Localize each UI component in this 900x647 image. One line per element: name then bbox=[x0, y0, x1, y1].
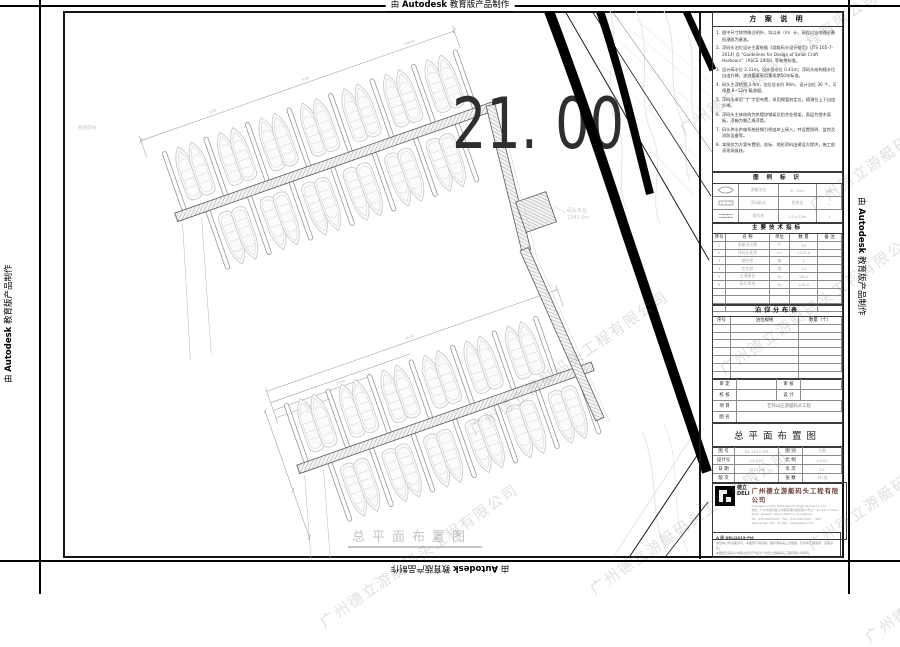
note-item: 码头供水供电系统经钢引桥由岸上接入，并设置照明、监控及消防设备等。 bbox=[722, 127, 839, 140]
legend-name: 浮动码头 bbox=[739, 197, 779, 210]
company-watermark: 广州德立游艇码头工程有限公司 bbox=[860, 494, 900, 647]
company-name-cn: 广州德立游艇码头工程有限公司 bbox=[752, 486, 844, 504]
dim-label: 4.00 bbox=[301, 76, 309, 82]
approver-value bbox=[737, 379, 777, 390]
note-item: 码头主浮桥宽 3.0m，泊位总长约 96m，设计泊位 30 个，可停靠 8~12… bbox=[722, 82, 839, 95]
legend-section: 图 例 标 识 游艇泊位 8~12m 30 浮动码头 铝合金 — 钢引桥 2.0… bbox=[712, 172, 843, 224]
dim-label: 44.00 bbox=[404, 334, 414, 341]
wm-prefix: 由 bbox=[391, 0, 400, 10]
deli-logo-text: 德立 DELI bbox=[737, 486, 750, 497]
designer-value bbox=[801, 390, 842, 401]
legend-spec: 铝合金 bbox=[779, 197, 817, 210]
signature-section: 审 定 审 核 校 核 设 计 项 目 艺邦山庄游艇码头工程 图 名 bbox=[712, 378, 843, 424]
footer-copyright: 未经本公司书面许可，本图纸不得复制、翻印或向第三方披露，仅供本工程使用，违者必究… bbox=[716, 541, 837, 551]
legend-title: 图 例 标 识 bbox=[713, 173, 842, 184]
autodesk-watermark-right: 由 Autodesk 教育版产品制作 bbox=[855, 192, 866, 321]
legend-qty: — bbox=[817, 197, 842, 210]
note-item: 浮码头主体结构为热镀锌钢架及铝合金框架，面层为塑木面板，浮箱为聚乙烯浮筒。 bbox=[722, 112, 839, 125]
autodesk-watermark-top: 由 Autodesk 教育版产品制作 bbox=[386, 0, 515, 12]
pontoon-icon bbox=[713, 197, 739, 210]
project-name: 艺邦山庄游艇码头工程 bbox=[737, 401, 842, 412]
project-label: 项 目 bbox=[713, 401, 737, 412]
shore-label: 规划岸线 bbox=[78, 124, 96, 131]
boat-icon bbox=[713, 184, 739, 197]
wm-suffix: 教育版产品制作 bbox=[450, 0, 510, 10]
footer-rights: 本图纸及其设计内容之知识产权归广州德立游艇码头工程有限公司所有。 bbox=[716, 551, 837, 556]
note-item: 浮码头采用“丁”字型布置，采用钢管桩定位，随潮位上下自由升降。 bbox=[722, 97, 839, 110]
drawing-title-faint: 总平面布置图 bbox=[352, 530, 472, 545]
notes-section: 方 案 说 明 1.图中尺寸除特殊注明外，均以米（m）计，高程以当地理论最低潮面… bbox=[712, 12, 843, 172]
company-address-2: Tel：020-34872223 Fax：020-34872223 Http：w… bbox=[752, 517, 844, 526]
right-rule bbox=[848, 0, 850, 594]
left-rule bbox=[39, 0, 41, 594]
company-address-1: 地址：广州市番禺区沙湾镇福涌村福贤路61号之一 No.61-1 Fuxian R… bbox=[752, 508, 844, 517]
checker-value bbox=[801, 379, 842, 390]
dim-label: 12.50 bbox=[335, 379, 345, 386]
platform-area-label: 1341.0m bbox=[567, 215, 589, 221]
wm-brand: Autodesk bbox=[402, 0, 447, 10]
verifier-value bbox=[737, 390, 777, 401]
sheet-title: 总平面布置图 bbox=[712, 422, 843, 448]
berth-table-section: 泊位分布表 序号 泊位规格 数量（个） bbox=[712, 304, 843, 380]
designer-label: 设 计 bbox=[777, 390, 801, 401]
note-item: 图中尺寸除特殊注明外，均以米（m）计，高程以当地理论最低潮面为基准。 bbox=[722, 30, 839, 43]
notes-body: 1.图中尺寸除特殊注明外，均以米（m）计，高程以当地理论最低潮面为基准。 2.浮… bbox=[713, 27, 842, 160]
cad-sheet: { "watermark": { "autodesk": {"prefix": … bbox=[0, 0, 900, 594]
titleblock-divider bbox=[699, 11, 701, 559]
note-item: 本图仅为方案布置图，坐标、地形资料由建设方提供，施工前须现场复核。 bbox=[722, 142, 839, 155]
footer-notes: A 级 DELI2015-PM 未经本公司书面许可，本图纸不得复制、翻印或向第三… bbox=[712, 532, 841, 558]
legend-spec: 8~12m bbox=[779, 184, 817, 197]
sheet-info-section: 图 号DL-2015-PM图 别方案 设计号15-023比 例1:500 日 期… bbox=[712, 446, 843, 484]
note-item: 设计高水位 2.31m，设计低水位 0.41m；浮码头结构随水位自由升降，波浪要… bbox=[722, 67, 839, 80]
platform-leader bbox=[553, 206, 566, 213]
upper-dock: 4.00 4.00 138.00 bbox=[114, 21, 539, 360]
tech-table-section: 主要技术指标 序号 名 称 单位 数 量 备 注 1游艇泊位数个30 2浮码头面… bbox=[712, 222, 843, 306]
approver-label: 审 定 bbox=[713, 379, 737, 390]
autodesk-watermark-left: 由 Autodesk 教育版产品制作 bbox=[4, 259, 15, 388]
platform-label: 码头平台 bbox=[567, 207, 587, 214]
berth-table-title: 泊位分布表 bbox=[713, 305, 842, 317]
autodesk-watermark-bottom: 由 Autodesk 教育版产品制作 bbox=[386, 562, 515, 573]
legend-name: 游艇泊位 bbox=[739, 184, 779, 197]
notes-title: 方 案 说 明 bbox=[713, 13, 842, 27]
deli-logo-icon bbox=[715, 486, 735, 508]
note-item: 浮码头泊位设计主要依据《游艇码头设计规范》(JTS 165-7-2014) 及 … bbox=[722, 45, 839, 65]
legend-qty: 30 bbox=[817, 184, 842, 197]
dim-label: 4.00 bbox=[209, 108, 217, 114]
checker-label: 审 核 bbox=[777, 379, 801, 390]
title-block: 方 案 说 明 1.图中尺寸除特殊注明外，均以米（m）计，高程以当地理论最低潮面… bbox=[712, 12, 843, 558]
lower-dock: 3.00 12.50 44.00 bbox=[244, 281, 632, 559]
verifier-label: 校 核 bbox=[713, 390, 737, 401]
tech-table-title: 主要技术指标 bbox=[713, 223, 842, 234]
